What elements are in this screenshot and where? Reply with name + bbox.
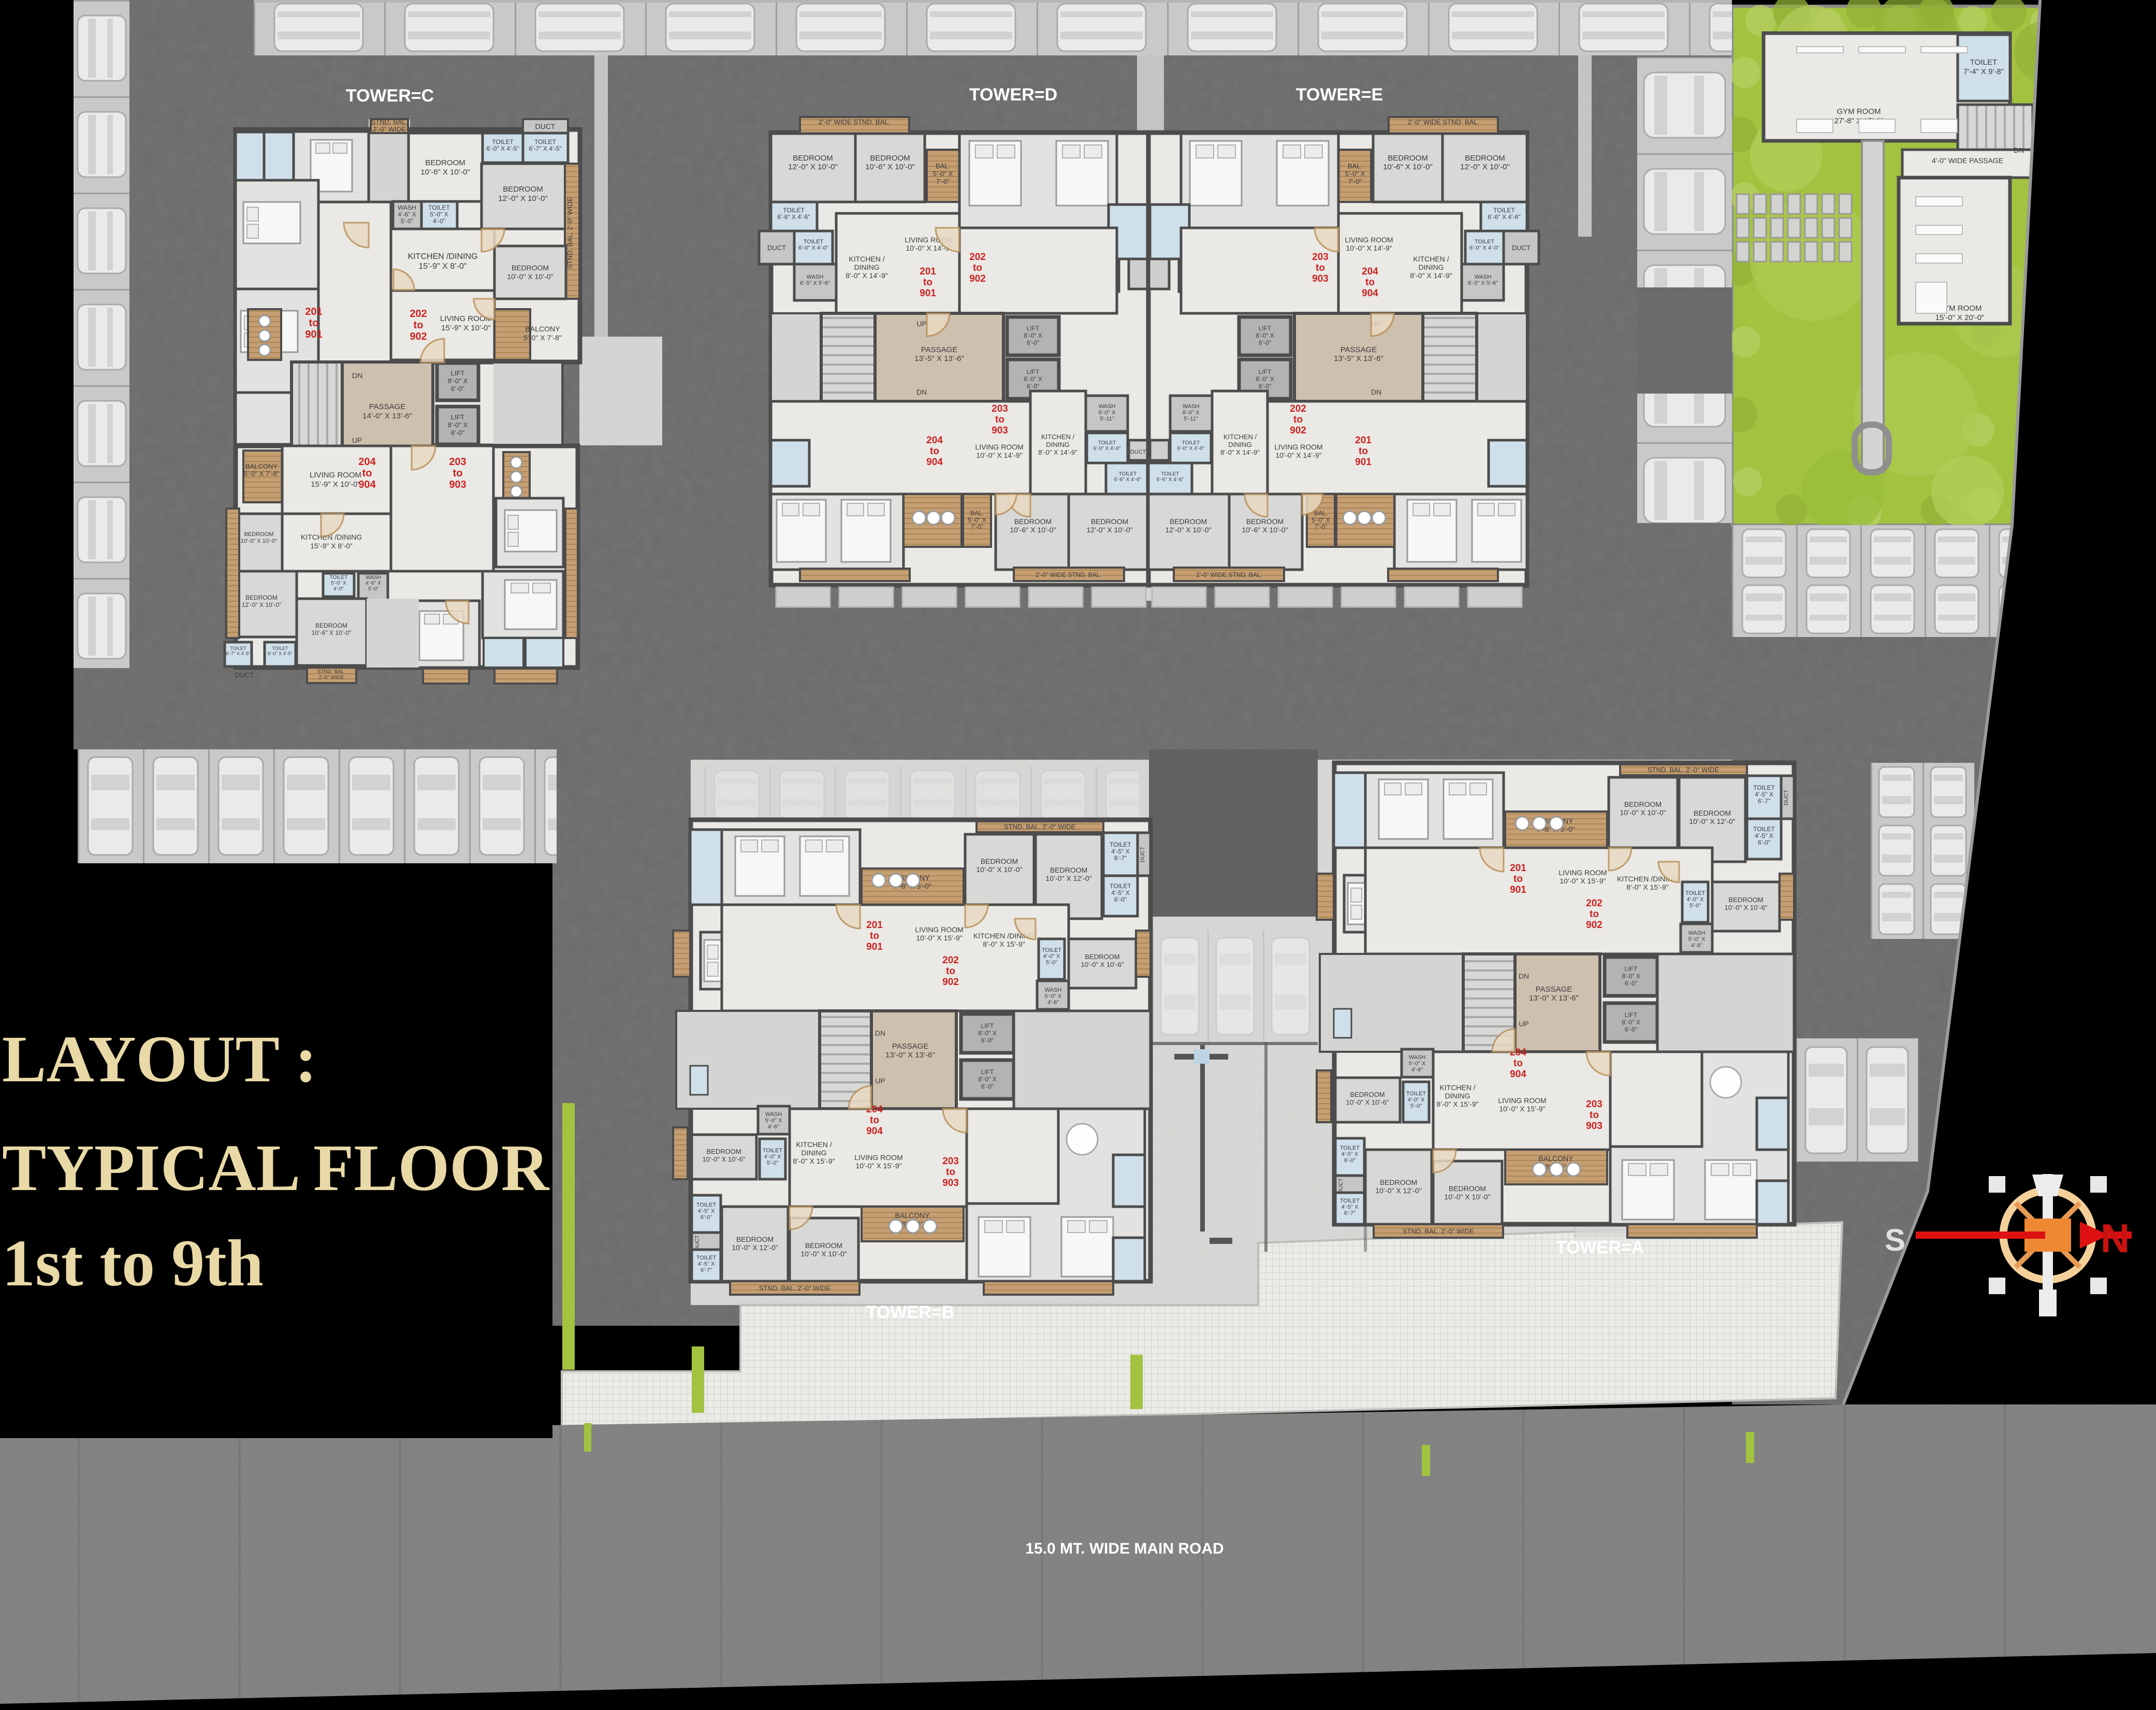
svg-text:203: 203 — [1586, 1099, 1603, 1110]
svg-text:TOILET: TOILET — [1493, 207, 1515, 214]
svg-text:TOILET: TOILET — [272, 646, 288, 651]
svg-text:5’-0" X: 5’-0" X — [1409, 1061, 1426, 1067]
svg-text:BEDROOM: BEDROOM — [512, 264, 549, 272]
svg-text:KITCHEN /: KITCHEN / — [1439, 1083, 1475, 1092]
svg-text:5’-0": 5’-0" — [1689, 903, 1701, 909]
svg-text:WASH: WASH — [1099, 403, 1116, 410]
svg-text:5’-0" X: 5’-0" X — [1045, 993, 1062, 999]
svg-text:to: to — [870, 1115, 879, 1126]
svg-text:10’-6" X 10’-0": 10’-6" X 10’-0" — [1383, 163, 1433, 171]
svg-text:2’-0" WIDE: 2’-0" WIDE — [318, 675, 344, 680]
svg-text:15.0 MT. WIDE MAIN ROAD: 15.0 MT. WIDE MAIN ROAD — [1025, 1540, 1223, 1557]
svg-text:12’-0" X 10’-0": 12’-0" X 10’-0" — [242, 601, 282, 608]
svg-text:903: 903 — [1312, 273, 1329, 284]
svg-text:STND. BAL. 2’-0" WIDE: STND. BAL. 2’-0" WIDE — [759, 1284, 831, 1292]
svg-text:TOWER=A: TOWER=A — [1556, 1238, 1644, 1257]
svg-text:6’-0" X: 6’-0" X — [1099, 410, 1116, 416]
svg-text:TOILET: TOILET — [1161, 471, 1179, 477]
svg-text:10’-0" X 14’-9": 10’-0" X 14’-9" — [976, 451, 1022, 459]
svg-text:WASH: WASH — [1045, 987, 1062, 993]
svg-text:201: 201 — [866, 920, 883, 931]
svg-text:STND. BAL.: STND. BAL. — [317, 669, 345, 675]
svg-text:203: 203 — [1312, 252, 1329, 263]
svg-text:4’-5" X: 4’-5" X — [1342, 1151, 1359, 1157]
svg-text:LIVING ROOM: LIVING ROOM — [915, 925, 963, 934]
svg-text:LIFT: LIFT — [1027, 368, 1040, 375]
svg-text:901: 901 — [1355, 457, 1372, 468]
svg-text:to: to — [870, 931, 879, 941]
svg-text:DN: DN — [916, 388, 927, 396]
svg-text:TOILET: TOILET — [330, 575, 348, 581]
svg-text:10’-0" X 10’-6": 10’-0" X 10’-6" — [1081, 961, 1124, 968]
svg-text:903: 903 — [942, 1178, 959, 1189]
svg-text:BEDROOM: BEDROOM — [1050, 866, 1087, 874]
svg-text:to: to — [309, 317, 319, 329]
svg-text:LIFT: LIFT — [451, 369, 465, 377]
svg-text:2’-0" WIDE STND. BAL.: 2’-0" WIDE STND. BAL. — [1408, 118, 1479, 126]
svg-text:904: 904 — [358, 479, 376, 490]
svg-text:15’-9" X 8’-0": 15’-9" X 8’-0" — [418, 262, 467, 271]
svg-text:6’-7" X 4’-5": 6’-7" X 4’-5" — [529, 145, 561, 152]
svg-text:2’-0" WIDE: 2’-0" WIDE — [373, 125, 406, 133]
svg-text:BALCONY: BALCONY — [895, 1211, 930, 1220]
svg-text:903: 903 — [992, 425, 1008, 436]
svg-text:5’-0" X 7’-8": 5’-0" X 7’-8" — [244, 470, 280, 477]
svg-text:201: 201 — [1510, 863, 1526, 874]
svg-text:902: 902 — [1290, 425, 1306, 436]
svg-text:5’-0" X: 5’-0" X — [968, 516, 986, 524]
svg-text:BEDROOM: BEDROOM — [503, 185, 543, 194]
svg-text:4’-6": 4’-6" — [1691, 943, 1702, 949]
svg-text:204: 204 — [926, 435, 943, 446]
svg-text:STND. BAL. 2’-0" WIDE: STND. BAL. 2’-0" WIDE — [1004, 823, 1076, 831]
svg-text:201: 201 — [920, 266, 936, 277]
svg-text:5’-0" X: 5’-0" X — [430, 211, 448, 218]
svg-text:6’-0": 6’-0" — [451, 429, 465, 437]
svg-text:TOILET: TOILET — [1685, 890, 1706, 896]
svg-text:to: to — [1293, 414, 1303, 425]
svg-text:6’-5" X 5’-6": 6’-5" X 5’-6" — [1468, 280, 1498, 286]
svg-text:10’-0" X 15’-9": 10’-0" X 15’-9" — [916, 934, 962, 942]
svg-text:BEDROOM: BEDROOM — [1014, 517, 1052, 526]
svg-text:4’-5" X: 4’-5" X — [698, 1261, 715, 1267]
svg-text:6’-0": 6’-0" — [1027, 383, 1039, 390]
svg-text:5’-0": 5’-0" — [767, 1160, 778, 1166]
svg-text:5’-0": 5’-0" — [368, 586, 379, 592]
svg-text:DINING: DINING — [1419, 263, 1444, 271]
svg-text:10’-0" X 15’-9": 10’-0" X 15’-9" — [1499, 1105, 1545, 1113]
svg-text:6’-7": 6’-7" — [1758, 798, 1770, 805]
svg-text:TOWER=B: TOWER=B — [866, 1302, 954, 1322]
svg-text:7’-0": 7’-0" — [936, 178, 950, 185]
svg-text:8’-0" X 14’-9": 8’-0" X 14’-9" — [1410, 271, 1452, 280]
svg-text:203: 203 — [942, 1156, 959, 1167]
svg-text:DINING: DINING — [1445, 1092, 1470, 1100]
svg-text:LIVING ROOM: LIVING ROOM — [975, 443, 1023, 451]
svg-text:LIVING ROOM: LIVING ROOM — [1498, 1096, 1546, 1105]
svg-text:5’-0" X: 5’-0" X — [765, 1118, 782, 1124]
svg-text:4’-5" X: 4’-5" X — [1111, 848, 1130, 855]
svg-text:12’-0" X 10’-0": 12’-0" X 10’-0" — [788, 163, 838, 171]
svg-text:UP: UP — [352, 436, 362, 444]
svg-text:BEDROOM: BEDROOM — [736, 1235, 774, 1243]
svg-text:4’-6" X: 4’-6" X — [398, 211, 416, 218]
svg-text:to: to — [1365, 277, 1375, 288]
svg-text:TYPICAL FLOOR: TYPICAL FLOOR — [2, 1131, 550, 1205]
svg-text:TOILET: TOILET — [1098, 440, 1116, 446]
svg-text:10’-6" X 10’-0": 10’-6" X 10’-0" — [312, 629, 352, 636]
svg-text:4’-5" X: 4’-5" X — [1342, 1204, 1359, 1210]
svg-text:6’-0" X 4’-5": 6’-0" X 4’-5" — [486, 145, 519, 152]
svg-text:S: S — [1885, 1223, 1905, 1257]
svg-text:5’-11": 5’-11" — [1100, 416, 1114, 422]
svg-text:KITCHEN /: KITCHEN / — [1223, 433, 1257, 441]
svg-text:10’-6" X 10’-0": 10’-6" X 10’-0" — [865, 163, 915, 171]
svg-text:TOILET: TOILET — [1110, 882, 1131, 890]
svg-text:8’-0" X: 8’-0" X — [1256, 332, 1274, 339]
svg-text:BEDROOM: BEDROOM — [1350, 1091, 1385, 1098]
svg-text:5’-0": 5’-0" — [1410, 1103, 1422, 1109]
svg-text:LIFT: LIFT — [1027, 325, 1040, 332]
svg-text:TOWER=C: TOWER=C — [346, 86, 434, 106]
svg-text:KITCHEN /: KITCHEN / — [1041, 433, 1075, 441]
svg-text:N: N — [2101, 1215, 2130, 1261]
svg-text:6’-6" X 4’-6": 6’-6" X 4’-6" — [1157, 477, 1184, 483]
svg-text:BEDROOM: BEDROOM — [1728, 896, 1763, 904]
svg-text:7'-4" X 9'-8": 7'-4" X 9'-8" — [1963, 67, 2004, 76]
svg-text:8’-0" X 15’-9": 8’-0" X 15’-9" — [983, 940, 1025, 948]
svg-text:WASH: WASH — [765, 1111, 782, 1118]
svg-text:901: 901 — [1510, 885, 1526, 895]
svg-text:8’-0" X 14’-9": 8’-0" X 14’-9" — [1038, 448, 1077, 456]
svg-text:5’-0" X 7’-8": 5’-0" X 7’-8" — [523, 334, 562, 342]
svg-text:8’-0" X: 8’-0" X — [1622, 973, 1640, 980]
svg-text:4’-0" X: 4’-0" X — [1043, 953, 1060, 960]
svg-text:BEDROOM: BEDROOM — [870, 154, 910, 163]
svg-text:13’-5" X 13’-6": 13’-5" X 13’-6" — [914, 354, 964, 363]
svg-text:DINING: DINING — [1228, 441, 1252, 448]
svg-text:4’-0" X: 4’-0" X — [1408, 1097, 1425, 1103]
svg-text:6’-0" X 4’-5": 6’-0" X 4’-5" — [268, 651, 292, 656]
svg-text:KITCHEN /: KITCHEN / — [1413, 255, 1449, 263]
svg-text:10’-6" X 10’-0": 10’-6" X 10’-0" — [1010, 526, 1056, 534]
svg-text:15’-9" X 10’-0": 15’-9" X 10’-0" — [311, 480, 360, 489]
svg-text:to: to — [930, 446, 939, 457]
svg-text:6’-0": 6’-0" — [1259, 339, 1271, 346]
svg-text:DUCT: DUCT — [1130, 449, 1146, 455]
svg-text:KITCHEN /: KITCHEN / — [849, 255, 884, 263]
svg-text:10’-0" X 10’-0": 10’-0" X 10’-0" — [507, 272, 553, 281]
svg-text:4’-6": 4’-6" — [1411, 1067, 1423, 1073]
svg-text:14’-0" X 13’-6": 14’-0" X 13’-6" — [362, 412, 412, 421]
svg-text:to: to — [973, 263, 982, 273]
svg-text:1st to 9th: 1st to 9th — [2, 1226, 264, 1300]
svg-text:LIVING ROOM: LIVING ROOM — [310, 471, 361, 480]
svg-text:6’-7": 6’-7" — [1344, 1210, 1356, 1216]
svg-text:8’-0" X: 8’-0" X — [978, 1076, 997, 1083]
svg-text:204: 204 — [358, 456, 376, 468]
svg-text:903: 903 — [449, 479, 466, 490]
svg-text:DN: DN — [875, 1029, 885, 1037]
svg-text:TOILET: TOILET — [1406, 1091, 1426, 1097]
svg-text:2’-0" WIDE STND. BAL.: 2’-0" WIDE STND. BAL. — [1196, 571, 1262, 578]
svg-text:GYM ROOM: GYM ROOM — [1837, 107, 1881, 116]
svg-text:5’-0" X: 5’-0" X — [331, 581, 346, 586]
svg-text:6’-6" X 4’-6": 6’-6" X 4’-6" — [1114, 477, 1142, 483]
svg-text:LIFT: LIFT — [451, 413, 465, 421]
svg-text:DINING: DINING — [1046, 441, 1070, 448]
svg-text:6’-6" X 4’-6": 6’-6" X 4’-6" — [777, 213, 810, 221]
svg-text:202: 202 — [969, 252, 986, 263]
svg-text:TOWER=E: TOWER=E — [1296, 85, 1383, 105]
svg-text:904: 904 — [1362, 288, 1378, 299]
svg-text:6’-0": 6’-0" — [1259, 383, 1271, 390]
svg-text:6’-0": 6’-0" — [701, 1214, 712, 1221]
svg-text:12’-0" X 10’-0": 12’-0" X 10’-0" — [1165, 526, 1211, 534]
svg-text:TOILET: TOILET — [804, 239, 824, 245]
svg-text:TOILET: TOILET — [1119, 471, 1137, 477]
svg-text:10’-0" X 15’-9": 10’-0" X 15’-9" — [855, 1162, 901, 1170]
svg-text:UP: UP — [1519, 1020, 1528, 1028]
svg-text:15’-9" X 10’-0": 15’-9" X 10’-0" — [441, 324, 491, 332]
svg-text:5’-0" X: 5’-0" X — [1345, 170, 1365, 178]
svg-text:201: 201 — [1355, 435, 1372, 446]
svg-text:6’-7": 6’-7" — [1114, 854, 1127, 862]
svg-text:10’-0" X 10’-0": 10’-0" X 10’-0" — [976, 865, 1022, 874]
svg-text:5’-0" X: 5’-0" X — [933, 170, 953, 178]
svg-text:902: 902 — [1586, 920, 1603, 931]
svg-text:LIFT: LIFT — [1259, 325, 1272, 332]
svg-text:UP: UP — [875, 1077, 885, 1085]
svg-text:BAL.: BAL. — [936, 162, 950, 170]
svg-text:BEDROOM: BEDROOM — [1694, 809, 1731, 817]
svg-text:6’-0" X 4’-0": 6’-0" X 4’-0" — [798, 245, 828, 251]
svg-text:DUCT: DUCT — [767, 244, 786, 252]
svg-text:10’-0" X 10’-0": 10’-0" X 10’-0" — [1620, 808, 1666, 817]
svg-text:6’-5" X 5’-6": 6’-5" X 5’-6" — [800, 280, 830, 286]
svg-text:5’-0": 5’-0" — [401, 218, 413, 225]
svg-text:8’-0" X: 8’-0" X — [448, 421, 468, 429]
svg-text:8’-0" X 14’-9": 8’-0" X 14’-9" — [846, 271, 888, 280]
svg-text:15’-9" X 8’-0": 15’-9" X 8’-0" — [310, 542, 353, 550]
svg-text:6’-0": 6’-0" — [1758, 839, 1770, 846]
svg-text:8’-0" X 15’-9": 8’-0" X 15’-9" — [1436, 1100, 1479, 1108]
svg-text:5’-0": 5’-0" — [1046, 960, 1057, 966]
svg-text:BALCONY: BALCONY — [245, 462, 278, 470]
svg-text:903: 903 — [1586, 1121, 1603, 1132]
svg-text:5’-0" X: 5’-0" X — [1688, 936, 1706, 943]
svg-text:BAL.: BAL. — [1348, 162, 1362, 170]
svg-text:4’-5" X: 4’-5" X — [1755, 791, 1773, 798]
svg-text:BEDROOM: BEDROOM — [1465, 154, 1505, 163]
svg-text:BEDROOM: BEDROOM — [1624, 800, 1662, 808]
svg-text:STND. BAL.: STND. BAL. — [371, 118, 408, 126]
svg-text:STND. BAL. 2’-0" WIDE: STND. BAL. 2’-0" WIDE — [1403, 1227, 1475, 1235]
svg-text:202: 202 — [1290, 403, 1306, 414]
svg-text:2’-0" WIDE STND. BAL.: 2’-0" WIDE STND. BAL. — [819, 118, 890, 126]
svg-text:8’-0" X 14’-9": 8’-0" X 14’-9" — [1220, 448, 1260, 456]
svg-text:TOILET: TOILET — [230, 646, 246, 651]
svg-text:6’-0": 6’-0" — [1114, 896, 1127, 903]
svg-text:TOILET: TOILET — [1475, 239, 1495, 245]
svg-text:4’-6": 4’-6" — [768, 1124, 779, 1130]
svg-text:DINING: DINING — [854, 263, 880, 271]
svg-text:202: 202 — [942, 955, 959, 966]
svg-text:901: 901 — [866, 941, 883, 952]
svg-text:8’-0" X: 8’-0" X — [1256, 375, 1274, 383]
svg-text:10’-0" X 12’-0": 10’-0" X 12’-0" — [1375, 1186, 1421, 1195]
svg-text:BEDROOM: BEDROOM — [315, 622, 347, 629]
svg-text:10’-0" X 10’-0": 10’-0" X 10’-0" — [241, 538, 277, 544]
svg-text:10’-6" X 10’-0": 10’-6" X 10’-0" — [1242, 526, 1288, 534]
svg-text:4’-5" X: 4’-5" X — [1755, 832, 1773, 839]
svg-text:to: to — [995, 414, 1004, 425]
svg-text:BALCONY: BALCONY — [526, 325, 561, 333]
svg-text:6’-0": 6’-0" — [1027, 339, 1039, 346]
svg-text:LAYOUT :: LAYOUT : — [2, 1022, 317, 1096]
svg-text:WASH: WASH — [807, 274, 824, 280]
svg-text:10’-0" X 10’-6": 10’-0" X 10’-6" — [1725, 904, 1768, 911]
svg-text:WASH: WASH — [1688, 930, 1706, 936]
svg-text:202: 202 — [1586, 898, 1603, 909]
svg-text:LIVING ROOM: LIVING ROOM — [1274, 443, 1322, 451]
svg-text:KITCHEN /DINING: KITCHEN /DINING — [407, 252, 477, 261]
svg-text:4’-6": 4’-6" — [1047, 999, 1059, 1006]
svg-text:2’-0" WIDE STND. BAL.: 2’-0" WIDE STND. BAL. — [1036, 571, 1102, 578]
svg-text:LIFT: LIFT — [1259, 368, 1272, 375]
svg-text:4’-6" X: 4’-6" X — [366, 581, 381, 586]
svg-text:4’-5" X: 4’-5" X — [698, 1208, 715, 1214]
svg-text:DINING: DINING — [802, 1149, 827, 1157]
svg-text:DN: DN — [352, 371, 362, 380]
svg-text:DUCT: DUCT — [1783, 789, 1789, 805]
svg-text:8’-0" X 15’-9": 8’-0" X 15’-9" — [1626, 883, 1669, 891]
svg-text:TOILET: TOILET — [696, 1202, 717, 1208]
svg-text:BAL.: BAL. — [1314, 510, 1328, 517]
svg-text:6’-0" X 4’-0": 6’-0" X 4’-0" — [1469, 245, 1499, 251]
svg-text:10’-0" X 10’-6": 10’-0" X 10’-6" — [703, 1155, 746, 1163]
svg-text:6’-0": 6’-0" — [1625, 1026, 1637, 1033]
svg-text:10’-6" X 10’-0": 10’-6" X 10’-0" — [420, 168, 470, 177]
svg-text:PASSAGE: PASSAGE — [1341, 345, 1377, 354]
svg-text:TOILET: TOILET — [492, 138, 514, 146]
svg-text:DUCT: DUCT — [235, 671, 254, 679]
svg-text:6’-0": 6’-0" — [1625, 980, 1637, 987]
svg-text:DN: DN — [1519, 972, 1529, 980]
svg-text:10’-0" X 10’-0": 10’-0" X 10’-0" — [1444, 1193, 1490, 1201]
svg-text:TOILET: TOILET — [1970, 58, 1997, 67]
svg-text:10’-0" X 10’-0": 10’-0" X 10’-0" — [800, 1250, 847, 1258]
svg-text:13’-0" X 13’-6": 13’-0" X 13’-6" — [1529, 994, 1579, 1003]
svg-text:TOILET: TOILET — [1110, 841, 1131, 848]
svg-text:13’-5" X 13’-6": 13’-5" X 13’-6" — [1334, 354, 1383, 363]
svg-text:BALCONY: BALCONY — [1539, 1154, 1574, 1163]
svg-text:to: to — [453, 468, 463, 479]
svg-text:LIFT: LIFT — [1625, 965, 1638, 973]
svg-text:6’-7" X 4’-5": 6’-7" X 4’-5" — [226, 651, 250, 656]
svg-text:DUCT: DUCT — [1140, 846, 1146, 862]
svg-text:LIVING ROOM: LIVING ROOM — [1558, 868, 1607, 877]
svg-text:12’-0" X 10’-0": 12’-0" X 10’-0" — [498, 194, 548, 203]
svg-text:WASH: WASH — [1183, 403, 1200, 410]
svg-text:TOILET: TOILET — [1042, 947, 1062, 953]
svg-text:BEDROOM: BEDROOM — [805, 1241, 842, 1250]
svg-text:TOWER=D: TOWER=D — [969, 85, 1057, 105]
svg-text:to: to — [1590, 1110, 1599, 1121]
svg-text:PASSAGE: PASSAGE — [369, 402, 406, 411]
svg-text:904: 904 — [926, 457, 943, 468]
svg-text:7’-0": 7’-0" — [1315, 523, 1327, 530]
svg-text:BAL.: BAL. — [970, 510, 984, 517]
svg-text:to: to — [923, 277, 933, 288]
svg-text:5’-11": 5’-11" — [1184, 416, 1198, 422]
svg-text:904: 904 — [1510, 1069, 1526, 1080]
svg-text:10’-0" X 10’-6": 10’-0" X 10’-6" — [1346, 1098, 1389, 1106]
svg-text:902: 902 — [969, 273, 986, 284]
svg-text:BEDROOM: BEDROOM — [706, 1148, 741, 1155]
svg-text:4’-0" X: 4’-0" X — [1687, 896, 1704, 903]
svg-text:DN: DN — [2014, 146, 2024, 154]
svg-text:6’-6" X 4’-6": 6’-6" X 4’-6" — [1488, 213, 1520, 221]
svg-text:STND. BAL. 2’-0" WIDE: STND. BAL. 2’-0" WIDE — [1648, 766, 1720, 774]
svg-text:4’-0": 4’-0" — [433, 218, 445, 225]
svg-text:TOILET: TOILET — [1340, 1198, 1360, 1204]
svg-text:4’-5" X: 4’-5" X — [1111, 889, 1130, 896]
svg-text:6’-0": 6’-0" — [981, 1037, 994, 1044]
svg-text:TOILET: TOILET — [428, 204, 450, 211]
svg-text:PASSAGE: PASSAGE — [1536, 985, 1572, 994]
svg-text:201: 201 — [305, 306, 322, 317]
svg-text:PASSAGE: PASSAGE — [892, 1042, 929, 1051]
svg-text:6’-0" X 4’-0": 6’-0" X 4’-0" — [1094, 446, 1121, 452]
svg-text:TOILET: TOILET — [534, 138, 556, 146]
svg-text:DUCT: DUCT — [535, 122, 556, 131]
svg-text:to: to — [362, 468, 372, 479]
svg-text:to: to — [946, 1167, 955, 1178]
svg-text:TOILET: TOILET — [763, 1148, 783, 1154]
svg-text:BEDROOM: BEDROOM — [793, 154, 833, 163]
svg-text:UP: UP — [916, 320, 926, 328]
svg-text:BEDROOM: BEDROOM — [245, 594, 278, 601]
svg-text:to: to — [1316, 263, 1325, 273]
svg-text:4’-0": 4’-0" — [333, 586, 344, 592]
svg-text:4’-0" X: 4’-0" X — [764, 1154, 781, 1160]
svg-text:204: 204 — [1362, 266, 1378, 277]
svg-text:7’-0": 7’-0" — [971, 523, 983, 530]
svg-text:8’-0" X: 8’-0" X — [1024, 375, 1042, 383]
svg-text:WASH: WASH — [398, 204, 416, 211]
svg-text:6’-0" X: 6’-0" X — [1183, 410, 1200, 416]
svg-text:10’-0" X 15’-9": 10’-0" X 15’-9" — [1560, 877, 1606, 885]
svg-text:BEDROOM: BEDROOM — [1388, 154, 1428, 163]
svg-text:202: 202 — [410, 308, 427, 320]
svg-text:LIVING ROOM: LIVING ROOM — [1345, 236, 1393, 244]
svg-text:to: to — [1513, 874, 1523, 885]
svg-text:to: to — [1590, 909, 1599, 920]
svg-text:BEDROOM: BEDROOM — [1449, 1184, 1486, 1193]
svg-text:10’-0" X 12’-0": 10’-0" X 12’-0" — [732, 1243, 778, 1252]
svg-text:PASSAGE: PASSAGE — [921, 345, 958, 354]
svg-text:DN: DN — [1371, 388, 1381, 396]
svg-text:12’-0" X 10’-0": 12’-0" X 10’-0" — [1086, 526, 1132, 534]
svg-text:6’-7": 6’-7" — [701, 1267, 712, 1273]
svg-text:10’-0" X 12’-0": 10’-0" X 12’-0" — [1689, 817, 1735, 825]
svg-text:901: 901 — [920, 288, 936, 299]
svg-text:TOILET: TOILET — [1340, 1145, 1360, 1151]
svg-text:8’-0" X 15’-9": 8’-0" X 15’-9" — [793, 1157, 835, 1165]
svg-text:to: to — [946, 966, 955, 977]
svg-text:6’-0": 6’-0" — [1344, 1157, 1356, 1164]
